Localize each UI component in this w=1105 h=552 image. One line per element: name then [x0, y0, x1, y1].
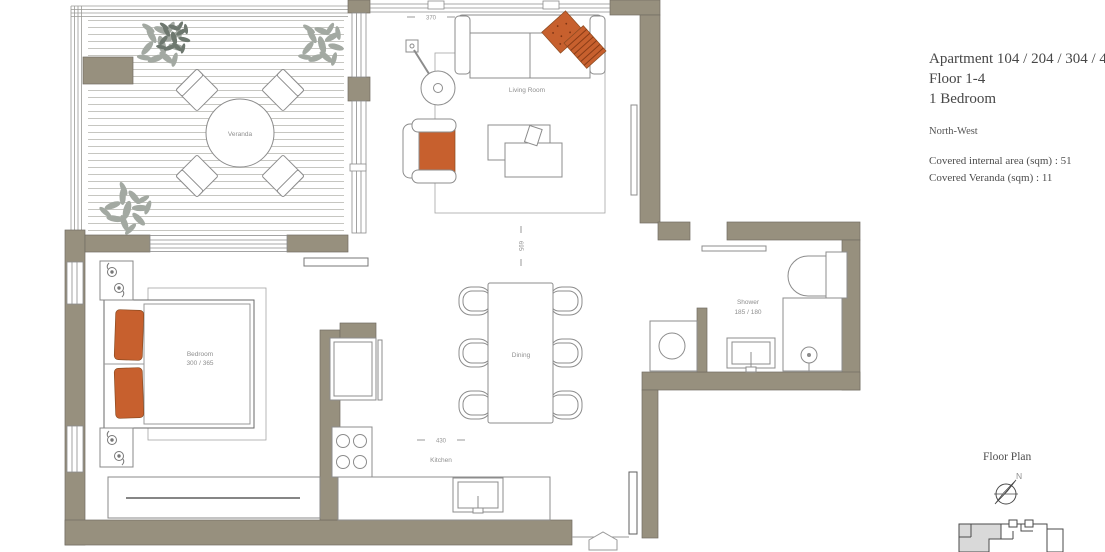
living-room-label: Living Room	[509, 87, 545, 94]
apartment-title: Apartment 104 / 204 / 304 / 404	[929, 51, 1105, 68]
dimension-kitchen: 430	[417, 439, 465, 445]
toilet	[788, 252, 847, 298]
compass-north-label: N	[1016, 471, 1022, 481]
shelf	[702, 246, 766, 251]
veranda-chair	[262, 155, 304, 197]
wardrobe	[108, 477, 320, 518]
dining-chair	[459, 287, 491, 315]
dining-chair	[550, 339, 582, 367]
orientation-label: North-West	[929, 126, 978, 137]
dining-chair	[459, 339, 491, 367]
dining-label: Dining	[512, 352, 531, 359]
veranda-area-label: Covered Veranda (sqm) : 11	[929, 172, 1052, 184]
kitchen-label: Kitchen	[430, 457, 452, 464]
shower-enclosure	[783, 298, 842, 372]
floor-lamp	[406, 40, 455, 105]
svg-text:430: 430	[436, 439, 447, 445]
nightstand	[100, 261, 133, 300]
svg-text:370: 370	[426, 16, 437, 22]
floor-range: Floor 1-4	[929, 71, 985, 88]
bedroom-label: Bedroom	[187, 351, 213, 358]
washing-machine	[650, 321, 697, 371]
kitchen-counter	[338, 477, 550, 520]
kitchen-stove	[332, 427, 372, 477]
kitchen-sink	[453, 478, 503, 513]
veranda-chair	[176, 155, 218, 197]
veranda-chair	[176, 69, 218, 111]
bed	[104, 300, 254, 428]
veranda-chair	[262, 69, 304, 111]
compass-icon: N	[985, 467, 1033, 513]
floor-plan-caption: Floor Plan	[983, 451, 1031, 463]
dining-chair	[550, 287, 582, 315]
dining-chair	[550, 391, 582, 419]
svg-text:695: 695	[517, 241, 523, 252]
veranda-label: Veranda	[228, 131, 253, 138]
kitchen-fridge	[330, 338, 382, 400]
entrance-arrow-icon	[589, 532, 617, 550]
bedroom-dims: 300 / 365	[186, 360, 213, 367]
armchair	[403, 119, 456, 183]
sliding-door	[304, 258, 368, 266]
bedroom-count: 1 Bedroom	[929, 91, 996, 108]
internal-area-label: Covered internal area (sqm) : 51	[929, 155, 1072, 167]
shower-dims: 185 / 180	[734, 309, 761, 316]
radiator	[631, 105, 637, 195]
nightstand	[100, 428, 133, 467]
dimension-top: 370	[407, 16, 455, 22]
building-key-plan	[951, 517, 1071, 552]
washbasin	[727, 338, 775, 372]
dining-chair	[459, 391, 491, 419]
shower-label: Shower	[737, 299, 760, 306]
entrance-door	[572, 472, 637, 537]
dimension-vertical: 695	[517, 226, 523, 266]
coffee-table	[488, 125, 562, 177]
floor-plan-page: Veranda Living Room Bedroom 300 / 365 Di…	[0, 0, 1105, 552]
